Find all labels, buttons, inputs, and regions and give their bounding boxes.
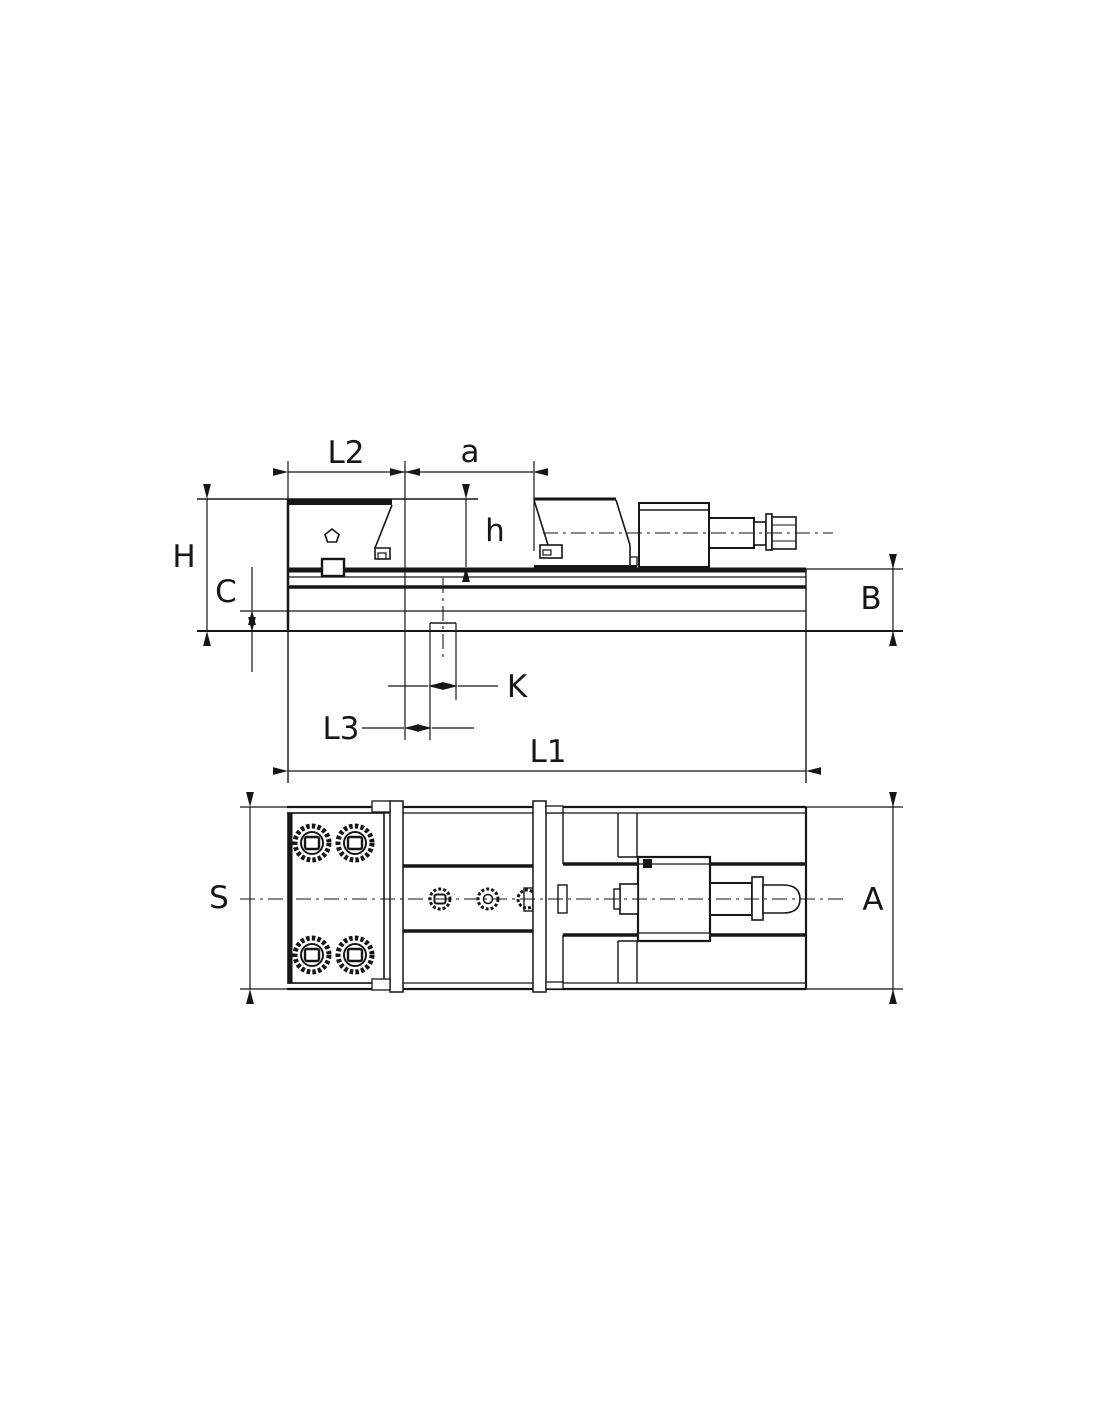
dimension-K: K xyxy=(388,669,528,705)
spindle-nut-block xyxy=(639,503,709,567)
dimension-h: h xyxy=(466,499,505,567)
dimension-L1: L1 xyxy=(288,734,806,771)
fixed-jaw xyxy=(288,502,392,576)
dimension-a: a xyxy=(405,434,533,472)
guide-key-square xyxy=(322,559,344,576)
dim-label-K: K xyxy=(507,669,528,705)
spindle-assembly xyxy=(543,503,833,567)
dimension-A: A xyxy=(862,795,893,1001)
dim-label-H: H xyxy=(172,539,195,575)
technical-drawing: L2 a h H C B K xyxy=(0,0,1100,1422)
dimension-L3: L3 xyxy=(323,711,475,747)
dimension-S: S xyxy=(209,807,250,989)
dim-label-a: a xyxy=(461,434,480,470)
dim-label-S: S xyxy=(209,880,229,916)
top-view xyxy=(240,801,903,992)
dim-label-A: A xyxy=(862,882,883,918)
end-plate xyxy=(288,813,384,983)
drawing-page: L2 a h H C B K xyxy=(0,0,1100,1422)
set-screw-dot xyxy=(643,859,652,868)
dim-label-L3: L3 xyxy=(323,711,360,747)
dim-label-L2: L2 xyxy=(328,435,365,471)
dim-label-B: B xyxy=(860,581,881,617)
dim-label-L1: L1 xyxy=(530,734,567,770)
dim-label-C: C xyxy=(215,574,237,610)
key-slot xyxy=(430,578,456,740)
dimension-C: C xyxy=(215,567,252,672)
side-view-dimensions: L2 a h H C B K xyxy=(172,434,893,771)
dimension-H: H xyxy=(172,499,207,631)
dimension-L2: L2 xyxy=(288,435,405,472)
jaw-screw-hole xyxy=(325,529,339,542)
dim-label-h: h xyxy=(485,513,505,549)
